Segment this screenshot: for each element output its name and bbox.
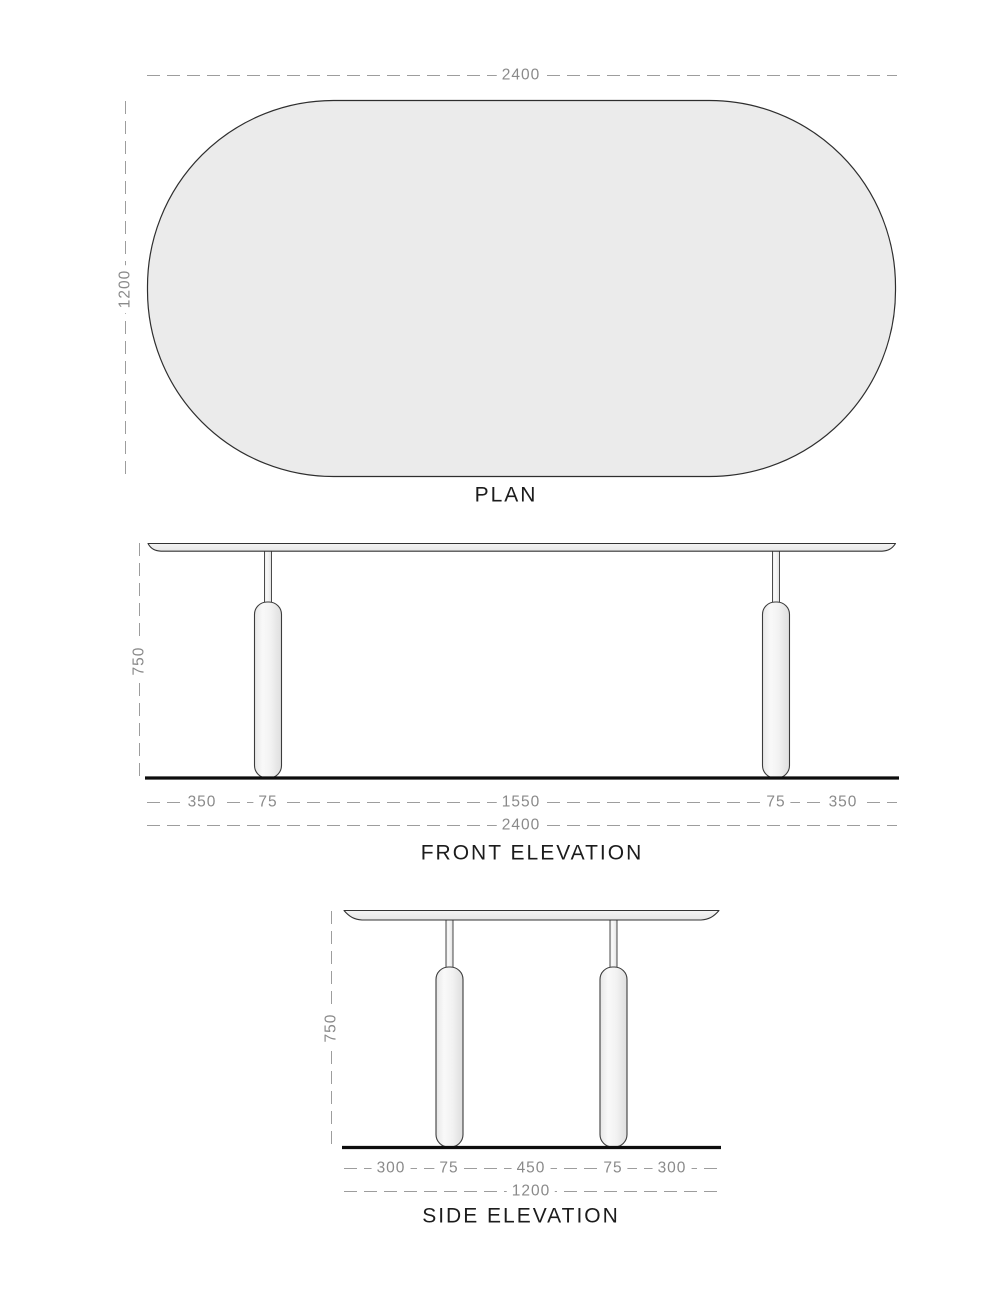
plan-view-title: PLAN [475, 483, 538, 506]
front-elevation-title: FRONT ELEVATION [421, 841, 644, 864]
plan-depth-dimension: 1200 [116, 265, 133, 313]
side-tabletop [344, 911, 719, 921]
side-height-dimension: 750 [322, 1009, 339, 1048]
front-height-dimension: 750 [130, 642, 147, 681]
side-segment-dimension-3: 450 [512, 1159, 551, 1176]
front-segment-dimension-4: 75 [761, 793, 790, 810]
drawing-geometry [0, 0, 1006, 1302]
front-right-leg [763, 602, 790, 778]
side-segment-dimension-5: 300 [653, 1159, 692, 1176]
front-right-leg-stem [773, 550, 780, 606]
plan-width-dimension: 2400 [497, 66, 545, 83]
side-segment-dimension-1: 300 [372, 1159, 411, 1176]
front-left-leg [255, 602, 282, 778]
front-overall-dimension: 2400 [497, 816, 545, 833]
side-right-leg [600, 967, 627, 1147]
side-right-leg-stem [610, 918, 617, 972]
side-overall-dimension: 1200 [507, 1182, 555, 1199]
front-segment-dimension-2: 75 [253, 793, 282, 810]
front-segment-dimension-1: 350 [183, 793, 222, 810]
front-segment-dimension-3: 1550 [497, 793, 545, 810]
side-elevation-title: SIDE ELEVATION [422, 1204, 620, 1227]
plan-tabletop-shape [148, 101, 896, 477]
side-left-leg-stem [446, 918, 453, 972]
technical-drawing-canvas: 2400 1200 PLAN 750 350 75 1550 75 350 24… [0, 0, 1006, 1302]
front-tabletop [148, 544, 896, 552]
front-segment-dimension-5: 350 [824, 793, 863, 810]
front-left-leg-stem [265, 550, 272, 606]
side-segment-dimension-4: 75 [598, 1159, 627, 1176]
side-segment-dimension-2: 75 [434, 1159, 463, 1176]
side-left-leg [436, 967, 463, 1147]
